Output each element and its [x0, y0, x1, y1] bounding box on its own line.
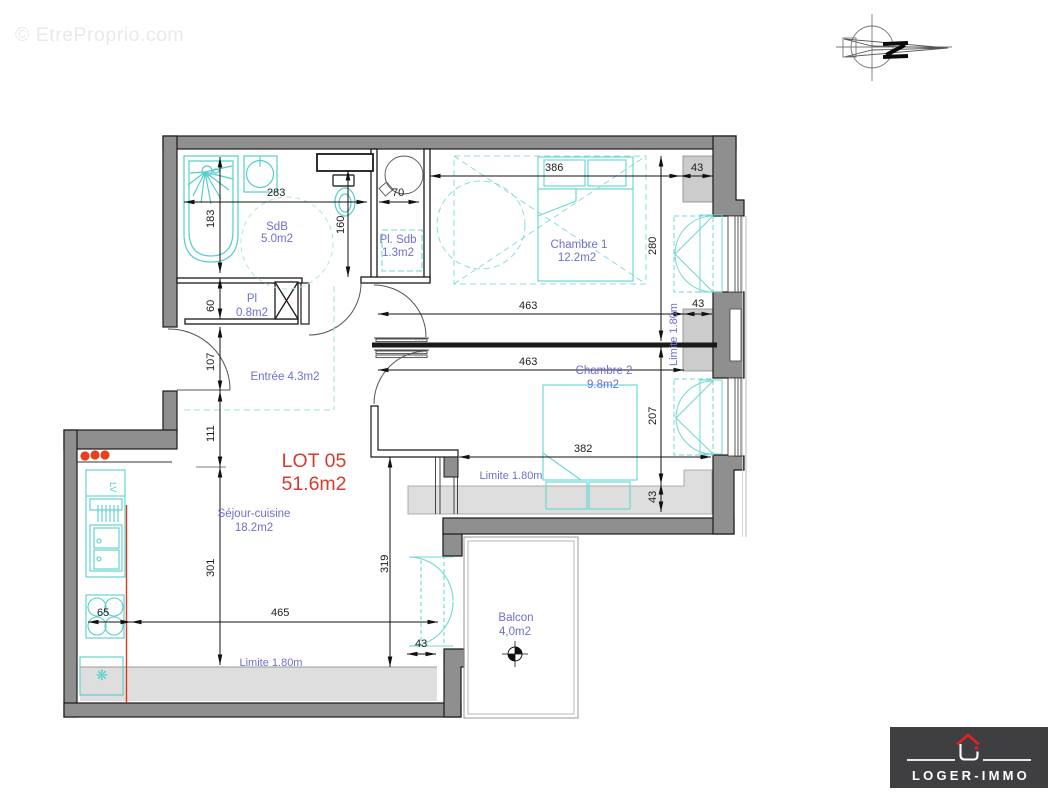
svg-text:43: 43: [415, 638, 427, 650]
svg-text:5.0m2: 5.0m2: [261, 233, 293, 245]
svg-text:463: 463: [519, 300, 537, 312]
svg-text:107: 107: [205, 353, 217, 371]
svg-text:© EtreProprio.com: © EtreProprio.com: [15, 24, 184, 46]
svg-text:301: 301: [205, 559, 217, 577]
svg-text:183: 183: [205, 210, 217, 228]
svg-text:SdB: SdB: [266, 221, 288, 233]
svg-text:65: 65: [97, 607, 109, 619]
svg-text:43: 43: [691, 162, 703, 174]
svg-text:465: 465: [271, 607, 289, 619]
svg-text:Séjour-cuisine: Séjour-cuisine: [218, 508, 291, 520]
svg-text:Limite 1.80m: Limite 1.80m: [668, 303, 680, 366]
svg-text:51.6m2: 51.6m2: [281, 473, 346, 495]
svg-text:Limite 1.80m: Limite 1.80m: [480, 470, 543, 482]
svg-text:Pl: Pl: [247, 293, 257, 305]
svg-text:LOT 05: LOT 05: [282, 450, 347, 472]
svg-text:280: 280: [647, 237, 659, 255]
svg-text:18.2m2: 18.2m2: [235, 522, 273, 534]
svg-text:382: 382: [574, 443, 592, 455]
svg-text:283: 283: [267, 187, 285, 199]
svg-text:4,0m2: 4,0m2: [499, 626, 531, 638]
svg-text:43: 43: [692, 298, 704, 310]
svg-text:60: 60: [205, 300, 217, 312]
svg-text:43: 43: [647, 491, 659, 503]
svg-text:Chambre 2: Chambre 2: [576, 365, 633, 377]
svg-text:9.8m2: 9.8m2: [587, 379, 619, 391]
svg-text:LOGER-IMMO: LOGER-IMMO: [912, 768, 1030, 783]
svg-text:386: 386: [545, 162, 563, 174]
svg-text:0.8m2: 0.8m2: [236, 307, 268, 319]
svg-text:319: 319: [379, 555, 391, 573]
svg-text:160: 160: [335, 216, 347, 234]
svg-text:Pl. Sdb: Pl. Sdb: [379, 234, 416, 246]
svg-text:Limite 1.80m: Limite 1.80m: [240, 657, 303, 669]
svg-text:12.2m2: 12.2m2: [558, 252, 596, 264]
svg-text:LV: LV: [108, 482, 118, 492]
svg-text:207: 207: [647, 407, 659, 425]
svg-text:70: 70: [392, 187, 404, 199]
svg-text:Chambre 1: Chambre 1: [551, 239, 608, 251]
svg-text:1.3m2: 1.3m2: [382, 247, 414, 259]
svg-text:111: 111: [205, 425, 217, 442]
svg-text:Balcon: Balcon: [498, 612, 533, 624]
svg-text:Entrée 4.3m2: Entrée 4.3m2: [250, 371, 319, 383]
svg-text:❋: ❋: [96, 667, 108, 683]
svg-text:463: 463: [519, 356, 537, 368]
